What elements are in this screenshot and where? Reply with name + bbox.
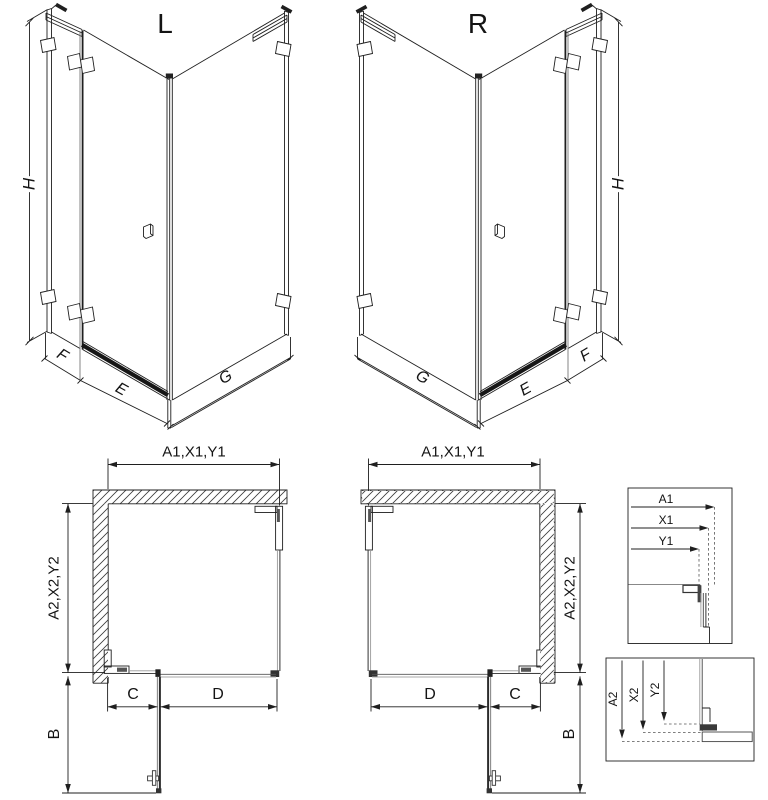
iso-left-title: L — [157, 10, 173, 38]
detail-width-label-a1: A1 — [659, 493, 674, 505]
detail-depth-label-x2: X2 — [628, 688, 640, 703]
detail-width-label-y1: Y1 — [659, 535, 674, 547]
plan-right-wall-hatch — [362, 491, 554, 682]
iso-view-left — [26, 5, 294, 430]
iso-right-title: R — [468, 10, 488, 38]
iso-view-right — [355, 5, 623, 430]
detail-box-depth — [606, 658, 754, 761]
detail-width-label-x1: X1 — [659, 514, 674, 526]
plan-right-b-dim-label: B — [562, 729, 578, 740]
plan-right-depth-dim-label: A2,X2,Y2 — [563, 556, 578, 619]
plan-right-width-dim-label: A1,X1,Y1 — [421, 445, 484, 460]
plan-left-d-dim-label: D — [212, 687, 224, 703]
detail-depth-label-a2: A2 — [607, 692, 619, 707]
plan-left-width-dim-label: A1,X1,Y1 — [162, 445, 225, 460]
detail-depth-label-y2: Y2 — [649, 683, 661, 698]
dim-label-height-left: H — [21, 176, 38, 192]
technical-drawing-canvas: L R H F E G H G E F A1,X1,Y1 A2,X2,Y2 C … — [0, 0, 768, 800]
plan-view-left — [62, 459, 287, 794]
plan-left-depth-dim-label: A2,X2,Y2 — [47, 556, 62, 619]
plan-left-b-dim-label: B — [47, 729, 63, 740]
plan-right-d-dim-label: D — [424, 687, 436, 703]
plan-right-c-dim-label: C — [509, 687, 521, 703]
dim-label-height-right: H — [610, 176, 627, 192]
detail-box-width — [628, 488, 732, 644]
technical-drawing — [0, 0, 768, 800]
plan-left-c-dim-label: C — [127, 687, 139, 703]
